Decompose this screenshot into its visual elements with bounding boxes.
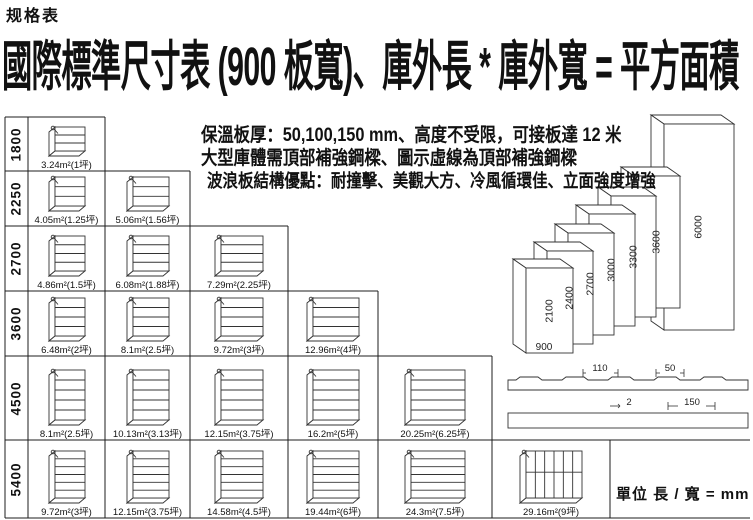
row-label-4500: 4500 xyxy=(5,356,28,440)
row-height-text: 2250 xyxy=(9,181,24,215)
flat-dim-2: 2 xyxy=(622,398,636,408)
size-cell-label: 7.29m²(2.25坪) xyxy=(190,277,288,291)
row-label-2700: 2700 xyxy=(5,226,28,291)
size-cell-label: 9.72m²(3坪) xyxy=(28,504,105,518)
size-cell-label: 6.08m²(1.88坪) xyxy=(105,277,190,291)
size-cell-label: 5.06m²(1.56坪) xyxy=(105,212,190,226)
row-height-text: 5400 xyxy=(9,462,24,496)
note-wave-panel-advantages: 波浪板結構優點：耐撞擊、美觀大方、冷風循環佳、立面強度增強 xyxy=(207,167,656,193)
size-cell-label: 9.72m²(3坪) xyxy=(190,342,288,356)
row-label-1800: 1800 xyxy=(5,117,28,171)
row-height-text: 3600 xyxy=(9,306,24,340)
size-cell-label: 19.44m²(6坪) xyxy=(288,504,378,518)
row-height-text: 2700 xyxy=(9,241,24,275)
panel-height-text: 6000 xyxy=(693,215,705,238)
panel-height-text: 3600 xyxy=(651,230,663,253)
size-cell-label: 3.24m²(1坪) xyxy=(28,157,105,171)
size-cell-label: 6.48m²(2坪) xyxy=(28,342,105,356)
size-cell-label: 20.25m²(6.25坪) xyxy=(378,426,492,440)
size-cell-label: 12.96m²(4坪) xyxy=(288,342,378,356)
panel-height-label: 6000 xyxy=(664,124,734,330)
size-cell-label: 14.58m²(4.5坪) xyxy=(190,504,288,518)
spec-sheet: 规格表 國際標準尺寸表 (900 板寬)、庫外長 * 庫外寬 = 平方面積 保溫… xyxy=(0,0,753,520)
size-cell-label: 16.2m²(5坪) xyxy=(288,426,378,440)
page-title: 國際標準尺寸表 (900 板寬)、庫外長 * 庫外寬 = 平方面積 xyxy=(2,22,739,101)
flat-dim-150: 150 xyxy=(678,398,706,408)
size-cell-label: 12.15m²(3.75坪) xyxy=(105,504,190,518)
size-cell-label: 4.05m²(1.25坪) xyxy=(28,212,105,226)
row-label-5400: 5400 xyxy=(5,440,28,518)
wave-dim-110: 110 xyxy=(586,364,614,374)
panel-width-label: 900 xyxy=(522,342,566,353)
row-height-text: 4500 xyxy=(9,381,24,415)
unit-note: 單位 長 / 寬 = mm xyxy=(616,483,749,504)
row-label-3600: 3600 xyxy=(5,291,28,356)
size-cell-label: 8.1m²(2.5坪) xyxy=(105,342,190,356)
row-label-2250: 2250 xyxy=(5,171,28,226)
size-cell-label: 29.16m²(9坪) xyxy=(492,504,610,518)
size-cell-label: 12.15m²(3.75坪) xyxy=(190,426,288,440)
wave-dim-50: 50 xyxy=(660,364,680,374)
size-cell-label: 4.86m²(1.5坪) xyxy=(28,277,105,291)
size-cell-label: 8.1m²(2.5坪) xyxy=(28,426,105,440)
note-reinforcement-beam: 大型庫體需頂部補強鋼樑、圖示虛線為頂部補強鋼樑 xyxy=(201,143,577,170)
size-cell-label: 10.13m²(3.13坪) xyxy=(105,426,190,440)
row-height-text: 1800 xyxy=(9,127,24,161)
size-cell-label: 24.3m²(7.5坪) xyxy=(378,504,492,518)
